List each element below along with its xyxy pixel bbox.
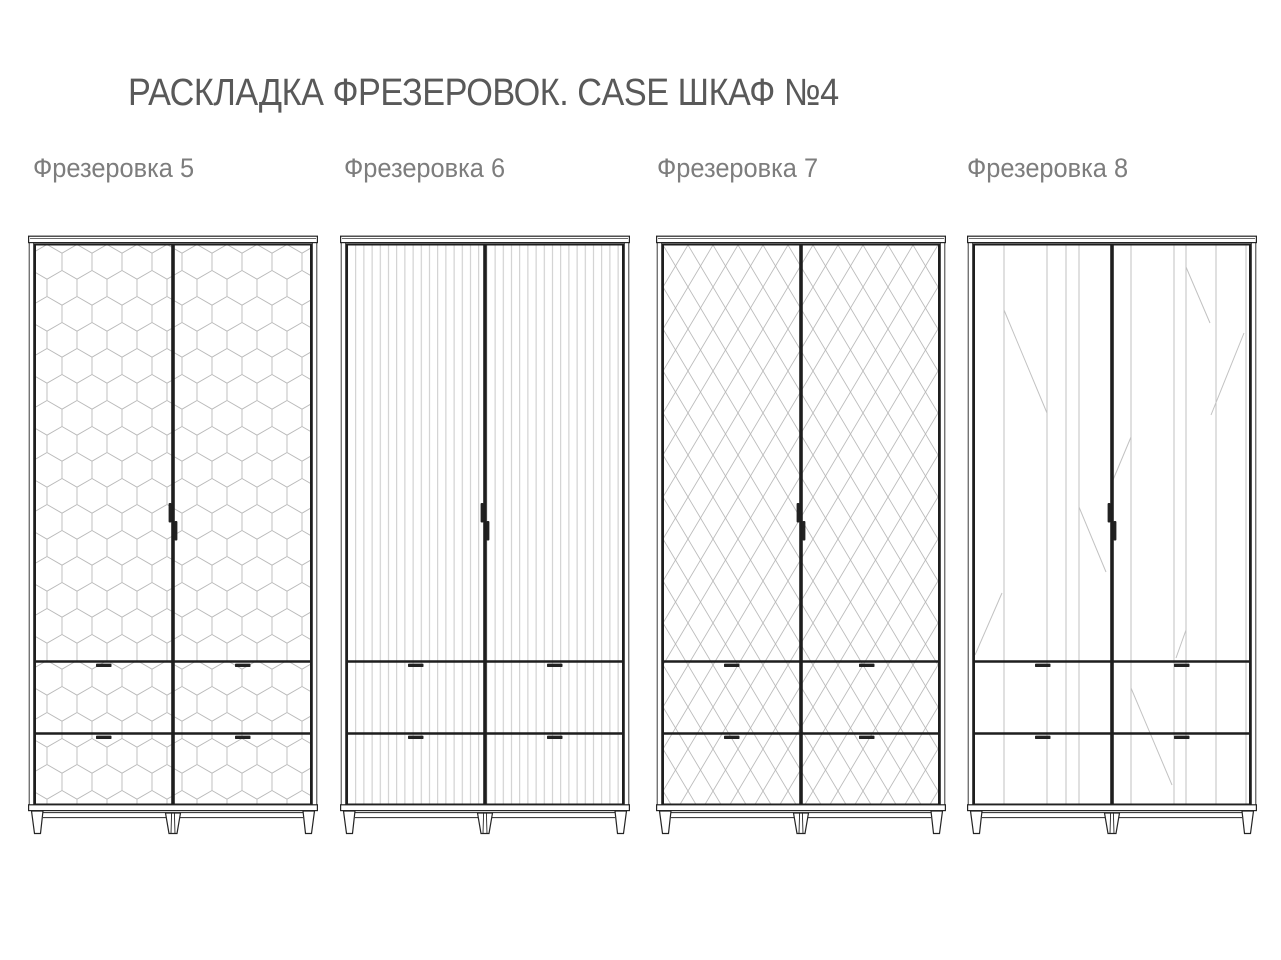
frezerovka-6-drawing — [340, 234, 630, 835]
frezerovka-7-drawing — [656, 234, 946, 835]
left-leg — [32, 811, 44, 834]
base — [341, 805, 630, 834]
wardrobe-label-frezerovka-5: Фрезеровка 5 — [33, 153, 194, 184]
left-door-handle — [1108, 503, 1111, 523]
doors — [974, 245, 1250, 805]
right-door-handle — [174, 521, 177, 541]
wardrobe-label-frezerovka-7: Фрезеровка 7 — [657, 153, 818, 184]
top-cap — [341, 236, 630, 242]
left-door — [974, 245, 1111, 805]
right-door-handle — [802, 521, 805, 541]
right-leg — [615, 811, 627, 834]
center-leg — [794, 813, 809, 834]
right-door-handle — [486, 521, 489, 541]
frezerovka-5-drawing — [28, 234, 318, 835]
wardrobe-frezerovka-7 — [656, 234, 946, 835]
right-door-handle — [1113, 521, 1116, 541]
right-leg — [1242, 811, 1254, 834]
wardrobe-label-frezerovka-8: Фрезеровка 8 — [967, 153, 1128, 184]
left-leg — [971, 811, 983, 834]
center-leg — [166, 813, 181, 834]
base — [657, 805, 946, 834]
page: { "page": { "title": "РАСКЛАДКА ФРЕЗЕРОВ… — [0, 0, 1281, 960]
base — [29, 805, 318, 834]
right-leg — [303, 811, 315, 834]
page-title: РАСКЛАДКА ФРЕЗЕРОВОК. CASE ШКАФ №4 — [128, 72, 839, 115]
center-leg — [1105, 813, 1120, 834]
left-door-handle — [797, 503, 800, 523]
right-leg — [931, 811, 943, 834]
base — [968, 805, 1257, 834]
wardrobe-frezerovka-6 — [340, 234, 630, 835]
wardrobe-frezerovka-5 — [28, 234, 318, 835]
wardrobe-label-frezerovka-6: Фрезеровка 6 — [344, 153, 505, 184]
top-cap — [968, 236, 1257, 242]
left-leg — [660, 811, 672, 834]
left-door-handle — [481, 503, 484, 523]
wardrobe-frezerovka-8 — [967, 234, 1257, 835]
center-leg — [478, 813, 493, 834]
frezerovka-8-drawing — [967, 234, 1257, 835]
left-door-handle — [169, 503, 172, 523]
right-door — [1113, 245, 1250, 805]
left-leg — [344, 811, 356, 834]
top-cap — [29, 236, 318, 242]
top-cap — [657, 236, 946, 242]
